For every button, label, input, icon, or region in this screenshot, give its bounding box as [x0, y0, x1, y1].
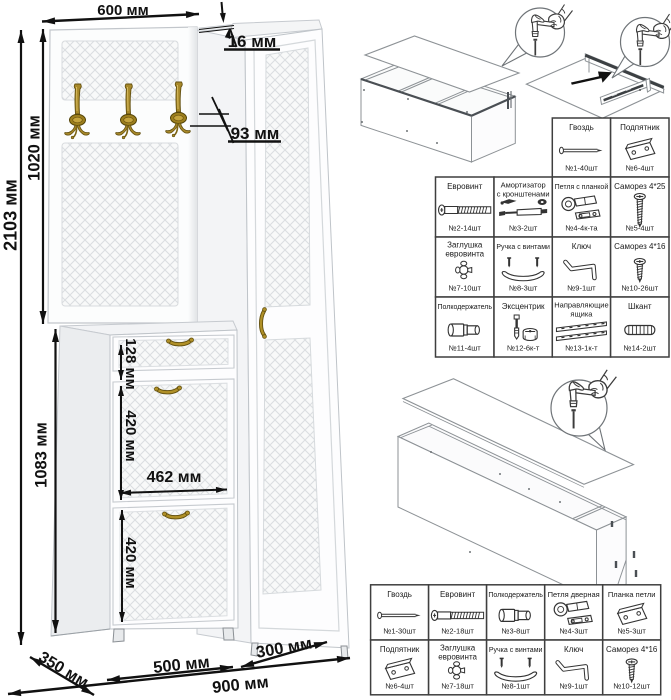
svg-text:№14-2шт: №14-2шт [624, 344, 657, 353]
svg-text:№6-4шт: №6-4шт [385, 681, 414, 690]
svg-text:Саморез 4*16: Саморез 4*16 [606, 645, 658, 654]
svg-text:Заглушка: Заглушка [447, 241, 483, 250]
svg-text:93 мм: 93 мм [231, 124, 280, 143]
svg-text:№2-18шт: №2-18шт [441, 627, 474, 636]
svg-text:№3-8шт: №3-8шт [501, 627, 530, 636]
svg-text:ящика: ящика [570, 310, 593, 319]
svg-text:Направляющие: Направляющие [554, 301, 608, 310]
svg-text:евровинта: евровинта [445, 250, 484, 259]
svg-text:128 мм: 128 мм [122, 338, 139, 389]
svg-text:Ключ: Ключ [572, 242, 591, 251]
svg-text:Ключ: Ключ [564, 645, 583, 654]
svg-text:Подпятник: Подпятник [380, 645, 420, 654]
svg-text:Саморез 4*25: Саморез 4*25 [614, 182, 666, 191]
svg-text:Полкодержатель: Полкодержатель [437, 304, 492, 311]
svg-text:№7-18шт: №7-18шт [441, 681, 474, 690]
svg-text:№8-3шт: №8-3шт [509, 284, 538, 293]
svg-text:№8-1шт: №8-1шт [501, 681, 530, 690]
svg-text:№13-1к-т: №13-1к-т [565, 344, 598, 353]
svg-text:№4-4к-та: №4-4к-та [565, 224, 598, 233]
svg-text:№3-2шт: №3-2шт [509, 224, 538, 233]
svg-text:Саморез 4*16: Саморез 4*16 [614, 242, 666, 251]
svg-text:1083 мм: 1083 мм [33, 422, 51, 488]
svg-text:Ручка с винтами: Ручка с винтами [496, 244, 550, 251]
svg-text:Заглушка: Заглушка [440, 644, 476, 653]
svg-text:№11-4шт: №11-4шт [449, 344, 482, 353]
svg-text:Гвоздь: Гвоздь [387, 590, 412, 599]
svg-text:Ручка с винтами: Ручка с винтами [489, 647, 543, 654]
svg-text:№2-14шт: №2-14шт [448, 224, 481, 233]
svg-text:№7-10шт: №7-10шт [448, 284, 481, 293]
svg-text:с кронштенами: с кронштенами [497, 190, 550, 199]
svg-text:Подпятник: Подпятник [620, 123, 660, 132]
svg-text:№1-40шт: №1-40шт [565, 164, 598, 173]
svg-text:1020 мм: 1020 мм [26, 115, 44, 181]
svg-text:Гвоздь: Гвоздь [569, 123, 594, 132]
svg-text:420 мм: 420 мм [122, 410, 139, 461]
svg-text:420 мм: 420 мм [122, 537, 139, 588]
svg-text:462 мм: 462 мм [147, 469, 202, 486]
svg-text:№4-3шт: №4-3шт [560, 627, 589, 636]
svg-text:№10-26шт: №10-26шт [621, 284, 658, 293]
svg-text:Петля с планкой: Петля с планкой [555, 183, 609, 191]
svg-text:Эксцентрик: Эксцентрик [502, 302, 545, 311]
svg-text:№9-1шт: №9-1шт [560, 681, 589, 690]
svg-text:№5-3шт: №5-3шт [618, 627, 647, 636]
svg-text:Шкант: Шкант [628, 302, 652, 311]
svg-text:Петля дверная: Петля дверная [548, 590, 600, 599]
svg-text:№6-4шт: №6-4шт [626, 164, 655, 173]
svg-text:евровинта: евровинта [438, 653, 477, 662]
svg-text:2103 мм: 2103 мм [1, 179, 21, 251]
svg-text:Евровинт: Евровинт [440, 590, 476, 599]
svg-text:Полкодержатель: Полкодержатель [488, 592, 543, 599]
svg-text:Евровинт: Евровинт [447, 182, 483, 191]
svg-text:Амортизатор: Амортизатор [501, 181, 546, 190]
svg-text:16 мм: 16 мм [228, 32, 277, 51]
svg-text:№9-1шт: №9-1шт [567, 284, 596, 293]
svg-text:№1-30шт: №1-30шт [383, 627, 416, 636]
svg-text:№12-6к-т: №12-6к-т [507, 344, 540, 353]
svg-text:Планка петли: Планка петли [608, 590, 656, 599]
